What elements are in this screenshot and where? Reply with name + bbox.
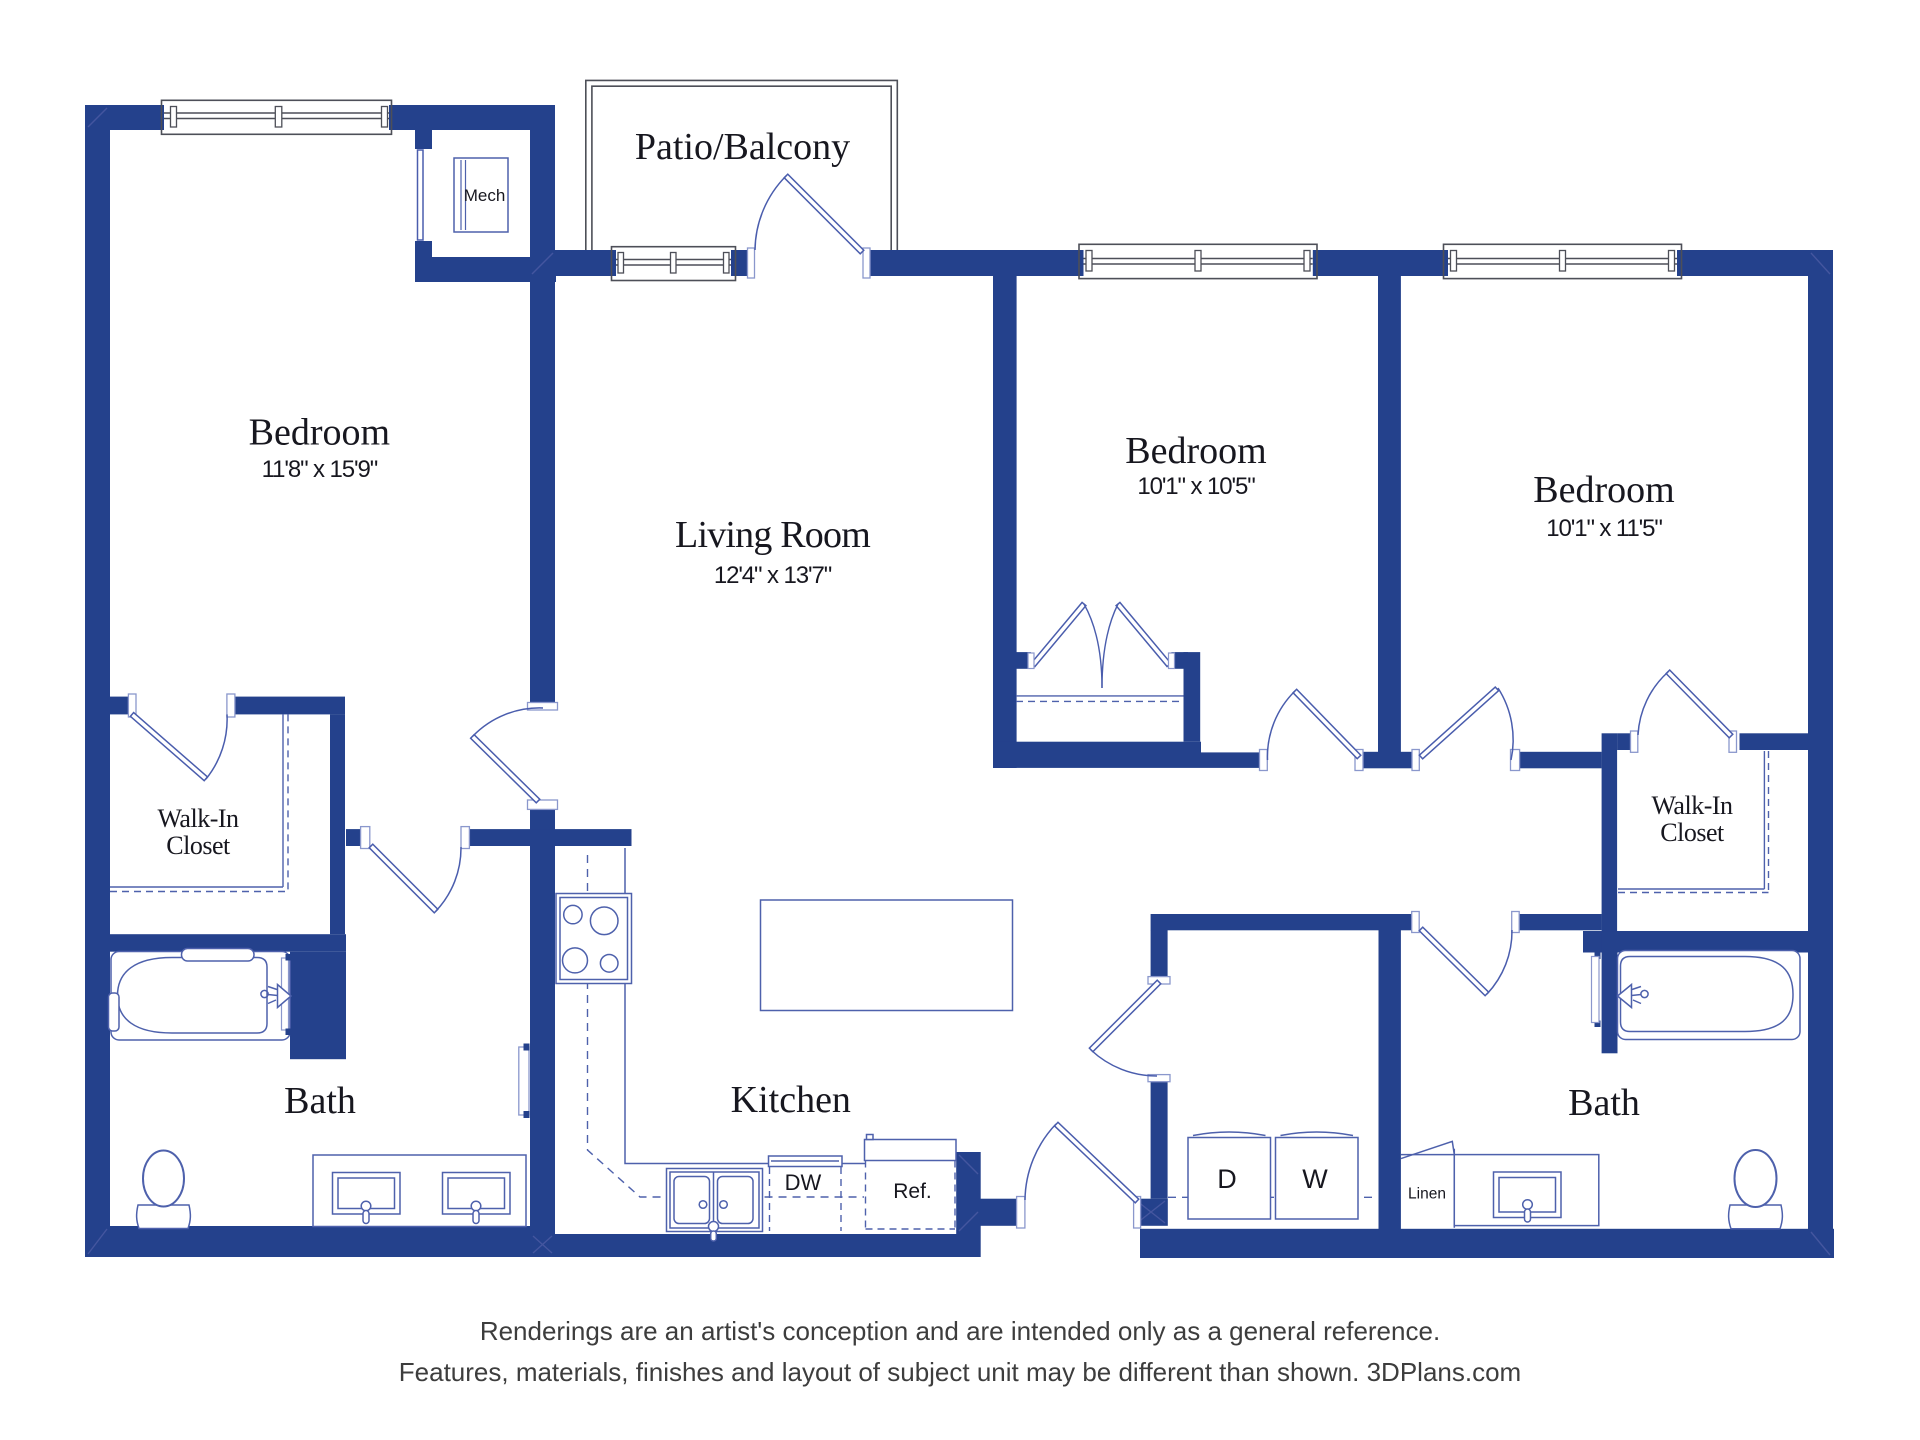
svg-text:Walk-In: Walk-In <box>157 804 239 833</box>
svg-text:Bedroom: Bedroom <box>1533 469 1674 511</box>
svg-text:Mech: Mech <box>464 186 506 205</box>
svg-text:Bedroom: Bedroom <box>249 412 390 454</box>
svg-text:Bath: Bath <box>1568 1082 1640 1124</box>
svg-text:12'4" x 13'7": 12'4" x 13'7" <box>714 562 832 589</box>
svg-text:Closet: Closet <box>166 831 231 860</box>
svg-text:W: W <box>1302 1164 1328 1194</box>
svg-text:10'1" x 10'5": 10'1" x 10'5" <box>1137 473 1255 500</box>
svg-text:11'8" x 15'9": 11'8" x 15'9" <box>262 456 378 483</box>
svg-text:10'1" x 11'5": 10'1" x 11'5" <box>1546 515 1662 542</box>
svg-text:Closet: Closet <box>1660 818 1725 847</box>
svg-text:Bedroom: Bedroom <box>1125 430 1266 472</box>
svg-text:DW: DW <box>785 1170 822 1195</box>
svg-text:Ref.: Ref. <box>893 1180 932 1203</box>
svg-text:D: D <box>1217 1164 1237 1194</box>
svg-text:Linen: Linen <box>1408 1186 1446 1203</box>
svg-text:Kitchen: Kitchen <box>731 1079 851 1121</box>
svg-text:Renderings are an artist's con: Renderings are an artist's conception an… <box>480 1316 1440 1346</box>
svg-text:Features, materials, finishes: Features, materials, finishes and layout… <box>399 1357 1521 1387</box>
svg-text:Walk-In: Walk-In <box>1651 791 1733 820</box>
svg-text:Bath: Bath <box>284 1080 356 1122</box>
svg-text:Patio/Balcony: Patio/Balcony <box>635 126 850 168</box>
svg-text:Living Room: Living Room <box>675 514 870 556</box>
